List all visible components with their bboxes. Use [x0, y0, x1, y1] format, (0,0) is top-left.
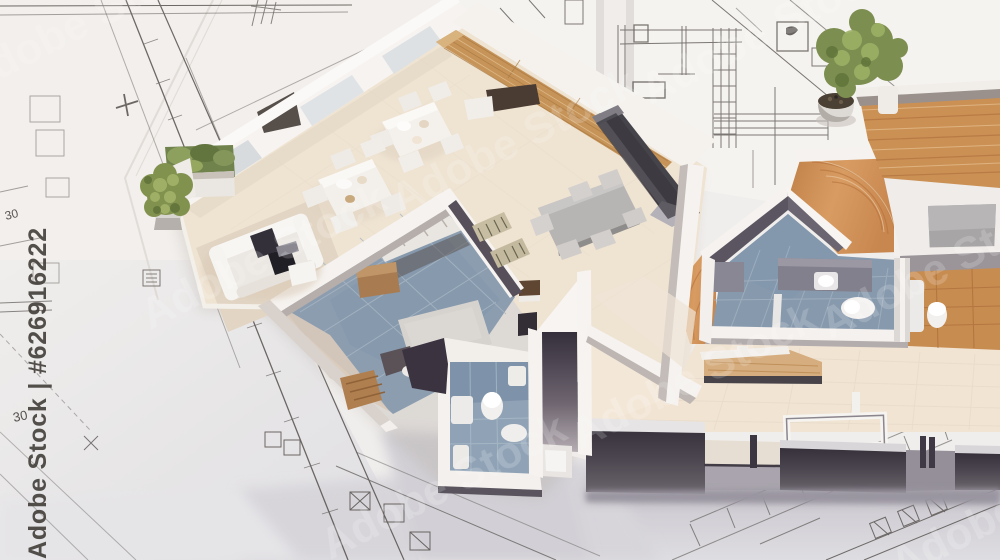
svg-text:Adobe Stock | #626916222: Adobe Stock | #626916222 [24, 227, 52, 559]
